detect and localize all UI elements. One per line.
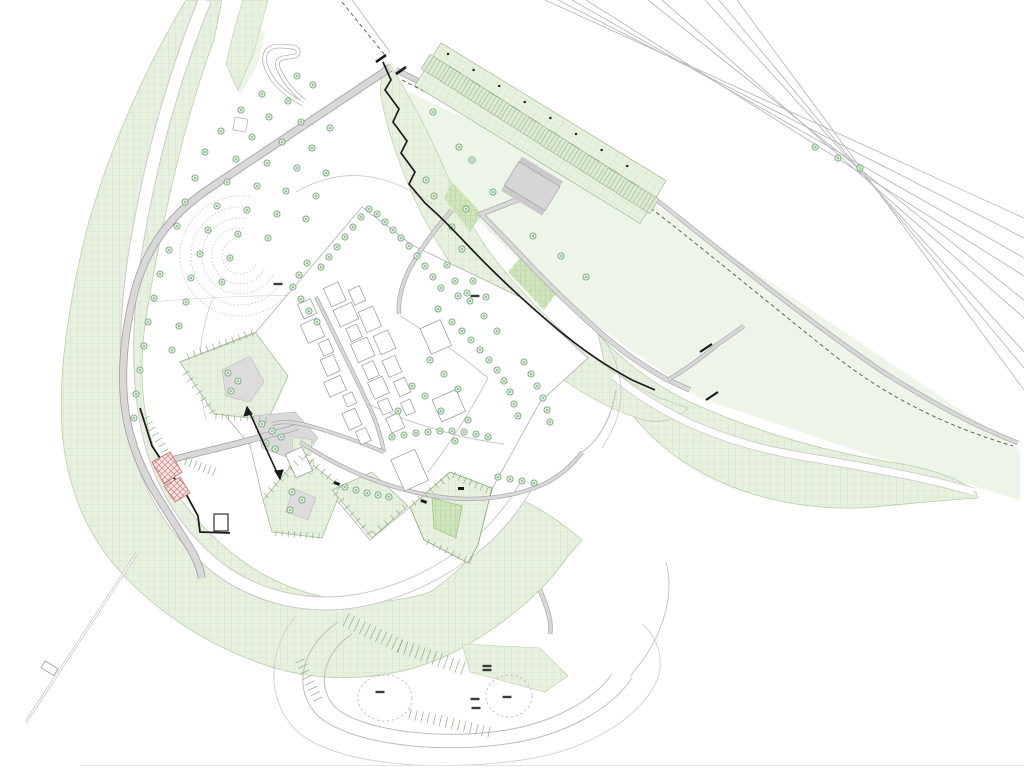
south-connector-road [540, 590, 551, 634]
map-label [274, 283, 283, 285]
map-label [471, 698, 480, 700]
arrival-east-path [630, 562, 669, 676]
lamp-post-icon [626, 165, 628, 167]
stair-tick [152, 432, 159, 436]
stair-tick [470, 722, 472, 733]
stair-tick [439, 716, 441, 727]
stair-tick [155, 438, 162, 442]
stair-tick [433, 714, 435, 725]
stair-tick [306, 681, 315, 685]
planting-circle [358, 675, 412, 721]
map-label [503, 696, 512, 698]
lamp-post-icon [601, 149, 603, 151]
stair-tick [308, 686, 317, 690]
fortress-site-plan [0, 0, 1024, 772]
contour-arc [202, 218, 273, 294]
stair-tick [189, 459, 192, 467]
stair-tick [451, 718, 453, 729]
stair-tick [463, 721, 465, 732]
arrival-green-wedge [462, 644, 568, 692]
stair-tick [212, 468, 215, 476]
site-plan-sheet [0, 0, 1024, 772]
stair-tick [194, 460, 197, 468]
gate-structure [214, 514, 228, 531]
stair-tick [455, 659, 460, 672]
lamp-post-icon [498, 85, 500, 87]
stair-tick [203, 464, 206, 472]
stair-tick [444, 655, 449, 668]
stair-tick [449, 657, 454, 670]
map-label [471, 295, 480, 297]
contour-arc [191, 207, 282, 305]
southwest-footpath [26, 553, 137, 722]
stair-tick [187, 353, 189, 360]
stair-tick [311, 691, 320, 695]
stair-tick [313, 697, 322, 701]
map-label [376, 691, 385, 693]
stair-tick [461, 661, 466, 674]
lamp-post-icon [524, 101, 526, 103]
stair-tick [482, 725, 484, 736]
map-label [472, 707, 481, 709]
map-label [483, 665, 492, 667]
bridge-abutment-1 [376, 55, 386, 62]
contour-arc [222, 238, 256, 274]
lamp-post-icon [473, 69, 475, 71]
stair-tick [409, 709, 411, 720]
stair-tick [415, 710, 417, 721]
lamp-post-icon [447, 53, 449, 55]
footpath-gate-marker [41, 661, 58, 676]
stair-tick [198, 462, 201, 470]
stair-tick [149, 427, 156, 431]
stair-tick [457, 720, 459, 731]
stair-tick [303, 675, 312, 679]
lamp-post-icon [549, 117, 551, 119]
stair-tick [161, 449, 168, 453]
stair-tick [208, 466, 211, 474]
lamp-post-icon [575, 133, 577, 135]
stair-tick [158, 443, 165, 447]
small-pavilion [233, 117, 248, 132]
gate-mark-3 [458, 487, 464, 490]
stair-tick [421, 711, 423, 722]
moat-channel [127, 0, 974, 603]
stair-tick [427, 713, 429, 724]
stair-tick [445, 717, 447, 728]
map-label [483, 669, 492, 671]
